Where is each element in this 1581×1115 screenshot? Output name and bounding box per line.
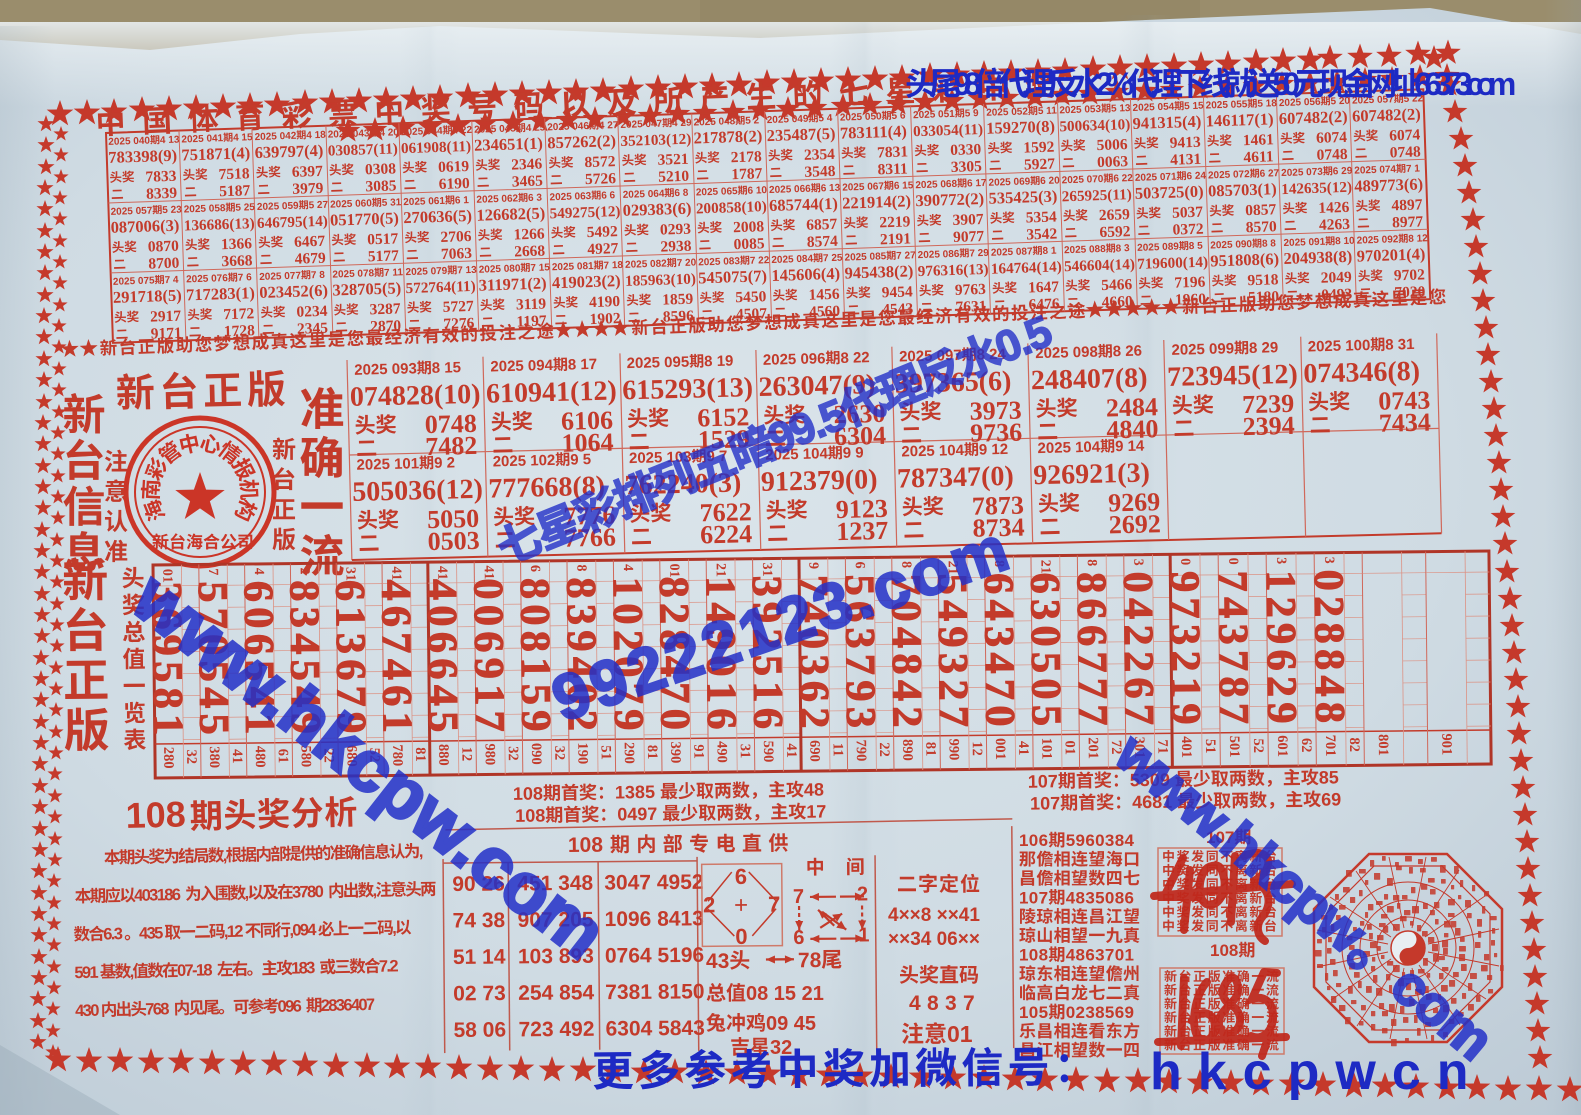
svg-text:419023(2): 419023(2) [552, 271, 621, 292]
svg-text:41: 41 [1015, 741, 1031, 756]
svg-text:8311: 8311 [877, 160, 908, 178]
svg-text:204938(8): 204938(8) [1283, 247, 1352, 268]
svg-text:9: 9 [1161, 571, 1207, 592]
svg-text:8570: 8570 [1245, 218, 1277, 236]
svg-text:951808(6): 951808(6) [1210, 249, 1279, 270]
svg-text:5 23: 5 23 [162, 205, 182, 217]
svg-text:2659: 2659 [1099, 206, 1131, 224]
svg-text:3668: 3668 [221, 252, 253, 270]
svg-text:2: 2 [1257, 596, 1303, 617]
svg-text:723945(12): 723945(12) [1167, 359, 1298, 393]
svg-text:32: 32 [505, 746, 521, 761]
svg-text:4: 4 [976, 652, 1022, 673]
svg-text:4611: 4611 [1243, 148, 1274, 166]
svg-text:6: 6 [527, 565, 542, 572]
svg-text:31: 31 [759, 562, 774, 576]
svg-text:5 20: 5 20 [1330, 96, 1350, 108]
svg-text:4: 4 [883, 680, 929, 701]
svg-text:7 11: 7 11 [384, 267, 404, 279]
svg-text:265925(11): 265925(11) [1061, 186, 1132, 205]
svg-text:5 2: 5 2 [745, 115, 760, 126]
svg-text:21: 21 [713, 563, 728, 577]
svg-text:234651(1): 234651(1) [474, 134, 543, 155]
svg-text:610941(12): 610941(12) [486, 375, 617, 409]
svg-text:5354: 5354 [1025, 209, 1057, 227]
svg-text:9 12: 9 12 [979, 441, 1009, 459]
svg-text:2025 085: 2025 085 [844, 251, 886, 263]
svg-text:2191: 2191 [880, 230, 912, 248]
svg-text:7: 7 [205, 568, 220, 575]
svg-text:023452(6): 023452(6) [259, 281, 328, 302]
svg-text:4: 4 [620, 564, 635, 571]
svg-text:+: + [734, 892, 748, 919]
svg-text:970201(4): 970201(4) [1356, 244, 1425, 265]
svg-text:108: 108 [125, 793, 186, 836]
svg-text:7196: 7196 [1174, 274, 1206, 292]
svg-text:2025 045: 2025 045 [474, 123, 516, 135]
svg-text:2025 068: 2025 068 [915, 179, 957, 191]
svg-text:4863701: 4863701 [1066, 946, 1135, 965]
svg-text:0372: 0372 [1172, 221, 1204, 239]
svg-text:2025 053: 2025 053 [1059, 104, 1101, 116]
svg-text:2025 074: 2025 074 [1354, 164, 1396, 176]
svg-text:12: 12 [969, 741, 985, 756]
svg-text:2: 2 [297, 567, 312, 574]
svg-text:0: 0 [1305, 569, 1351, 590]
svg-text:9702: 9702 [1394, 266, 1426, 284]
svg-text:3979: 3979 [292, 180, 324, 198]
svg-text:8977: 8977 [1392, 213, 1424, 231]
svg-text:2025 091: 2025 091 [1283, 237, 1325, 249]
svg-text:390772(2): 390772(2) [915, 189, 984, 210]
svg-text:2025 063: 2025 063 [549, 191, 591, 203]
svg-text:3119: 3119 [516, 296, 547, 314]
svg-text:31: 31 [342, 567, 357, 581]
svg-text:51 14: 51 14 [453, 946, 506, 969]
svg-text:0: 0 [976, 705, 1022, 726]
svg-text:7: 7 [466, 711, 512, 732]
svg-text:2: 2 [1115, 624, 1161, 645]
svg-text:217878(2): 217878(2) [693, 126, 762, 147]
svg-text:81: 81 [922, 742, 938, 757]
svg-text:2025 083: 2025 083 [698, 256, 740, 268]
svg-text:8: 8 [1210, 676, 1256, 697]
svg-text:2025 104: 2025 104 [901, 442, 965, 461]
svg-text:3542: 3542 [1026, 226, 1058, 244]
svg-text:4××8 ××41: 4××8 ××41 [888, 905, 980, 926]
svg-text:280: 280 [160, 747, 176, 769]
svg-text:146117(1): 146117(1) [1205, 109, 1273, 130]
svg-text:107: 107 [1019, 888, 1048, 907]
svg-text:2008: 2008 [733, 218, 765, 236]
svg-text:7: 7 [1068, 651, 1114, 672]
svg-text:9: 9 [1257, 623, 1303, 644]
svg-text:2668: 2668 [514, 243, 546, 261]
svg-text:980: 980 [481, 743, 497, 765]
svg-text:2025 050: 2025 050 [840, 111, 882, 123]
svg-text:489773(6): 489773(6) [1354, 174, 1423, 195]
svg-text:2025 072: 2025 072 [1208, 169, 1250, 181]
svg-text:2025 079: 2025 079 [405, 266, 447, 278]
svg-text:090: 090 [528, 743, 544, 765]
svg-text:200858(10): 200858(10) [696, 198, 767, 217]
svg-text:990: 990 [945, 739, 961, 761]
svg-text:6304 5843: 6304 5843 [605, 1017, 704, 1041]
svg-text:08 15 21: 08 15 21 [746, 983, 824, 1005]
svg-text:4: 4 [373, 659, 419, 680]
svg-text:029383(6): 029383(6) [622, 199, 691, 220]
svg-text:7 20: 7 20 [677, 257, 697, 269]
svg-text:3: 3 [1273, 557, 1288, 564]
svg-text:2025 067: 2025 067 [842, 181, 884, 193]
svg-text:2025 099: 2025 099 [1171, 340, 1234, 359]
svg-text:2025 086: 2025 086 [918, 249, 960, 261]
svg-text:1: 1 [696, 576, 742, 597]
svg-text:2394: 2394 [1242, 411, 1295, 441]
svg-text:9 9: 9 9 [843, 444, 864, 462]
svg-text:403186: 403186 [134, 886, 181, 905]
svg-text:0503: 0503 [427, 526, 480, 556]
svg-text:107: 107 [1028, 771, 1058, 791]
svg-text:6: 6 [1068, 625, 1114, 646]
svg-text:912379(0): 912379(0) [761, 464, 878, 498]
svg-text:7: 7 [1069, 678, 1115, 699]
svg-text:7 4: 7 4 [164, 275, 179, 286]
svg-text:4: 4 [883, 627, 929, 648]
svg-text:901: 901 [1438, 733, 1454, 755]
svg-text:6074: 6074 [1389, 126, 1421, 144]
svg-text:890: 890 [899, 739, 915, 761]
svg-text:639797(4): 639797(4) [254, 141, 323, 162]
svg-text:8: 8 [1068, 572, 1114, 593]
svg-text:9518: 9518 [1247, 271, 1279, 289]
svg-text:0063: 0063 [1097, 153, 1129, 171]
svg-text:1: 1 [744, 681, 790, 702]
svg-text:503725(0): 503725(0) [1135, 182, 1204, 203]
svg-text:001: 001 [992, 738, 1008, 760]
svg-text:69: 69 [1321, 789, 1341, 809]
svg-text:2025 049: 2025 049 [767, 114, 809, 126]
svg-text:4 22: 4 22 [452, 125, 472, 137]
svg-text:××34 06××: ××34 06×× [888, 929, 980, 950]
svg-text:033054(11): 033054(11) [913, 121, 984, 140]
svg-text:6: 6 [1021, 572, 1067, 593]
svg-text:7 6: 7 6 [238, 272, 253, 283]
svg-text:768: 768 [145, 1000, 169, 1018]
svg-text:501: 501 [1226, 736, 1242, 758]
svg-text:4927: 4927 [587, 240, 619, 258]
svg-text:6: 6 [372, 606, 418, 627]
svg-text:5037: 5037 [1172, 204, 1204, 222]
svg-text:087006(3): 087006(3) [110, 216, 179, 237]
svg-text:7 13: 7 13 [457, 265, 477, 277]
svg-text:4 20: 4 20 [379, 127, 399, 139]
svg-text:6 13: 6 13 [821, 183, 841, 195]
svg-text:6190: 6190 [438, 175, 470, 193]
svg-text:17: 17 [806, 802, 826, 822]
svg-text:6: 6 [744, 708, 790, 729]
svg-text:0: 0 [1022, 625, 1068, 646]
svg-text:108: 108 [515, 805, 545, 825]
svg-text:,12: ,12 [224, 923, 244, 941]
svg-text:1647: 1647 [1028, 278, 1060, 296]
svg-text:3: 3 [1130, 559, 1145, 566]
svg-text:2025 065: 2025 065 [696, 186, 738, 198]
svg-text:5 6: 5 6 [891, 110, 906, 121]
svg-text:790: 790 [853, 740, 869, 762]
svg-text:0: 0 [1225, 558, 1240, 565]
svg-text:751871(4): 751871(4) [181, 143, 250, 164]
svg-text:2025 082: 2025 082 [625, 258, 667, 270]
svg-text:880: 880 [435, 744, 451, 766]
svg-text:2025 102: 2025 102 [493, 452, 556, 471]
svg-text:5 4: 5 4 [818, 113, 833, 124]
svg-text:5 9: 5 9 [965, 108, 980, 119]
svg-text:1: 1 [1162, 677, 1208, 698]
svg-text:7 22: 7 22 [750, 255, 770, 267]
svg-text:164764(14): 164764(14) [991, 258, 1062, 277]
svg-text:82: 82 [1346, 737, 1362, 752]
svg-text:3: 3 [1161, 624, 1207, 645]
svg-text:2049: 2049 [1320, 269, 1352, 287]
svg-text:3085: 3085 [365, 177, 397, 195]
svg-text:801: 801 [1375, 734, 1391, 756]
svg-text:2025 089: 2025 089 [1137, 241, 1179, 253]
svg-text:783398(9): 783398(9) [108, 146, 177, 167]
svg-text:783111(4): 783111(4) [840, 121, 908, 142]
svg-text:7: 7 [930, 706, 976, 727]
svg-text:0857: 0857 [1245, 201, 1277, 219]
svg-text:2: 2 [791, 707, 837, 728]
svg-text:6857: 6857 [806, 216, 838, 234]
svg-text:2025 060: 2025 060 [330, 198, 372, 210]
svg-text:9: 9 [512, 710, 558, 731]
svg-text:2025 052: 2025 052 [986, 106, 1028, 118]
svg-text:12: 12 [458, 747, 474, 762]
svg-text:6: 6 [419, 658, 465, 679]
svg-text:2: 2 [1162, 650, 1208, 671]
svg-text:6397: 6397 [292, 163, 324, 181]
svg-text:4: 4 [251, 568, 266, 575]
svg-text:0: 0 [465, 605, 511, 626]
svg-text:9 14: 9 14 [1115, 438, 1145, 456]
svg-text:2: 2 [1115, 651, 1161, 672]
svg-text:2025 064: 2025 064 [623, 189, 665, 201]
svg-text:352103(12): 352103(12) [620, 131, 691, 150]
svg-text:0870: 0870 [148, 238, 180, 256]
svg-text:0: 0 [1022, 678, 1068, 699]
svg-text:787347(0): 787347(0) [897, 461, 1014, 495]
svg-text:1385: 1385 [615, 782, 655, 803]
svg-text:0238569: 0238569 [1066, 1003, 1135, 1022]
svg-text:8: 8 [144, 687, 190, 708]
svg-text:254 854: 254 854 [518, 981, 594, 1005]
svg-text:8 1: 8 1 [1042, 246, 1057, 257]
svg-text:5 11: 5 11 [1038, 105, 1058, 117]
svg-text:2025 094: 2025 094 [490, 357, 554, 376]
svg-text:3: 3 [281, 607, 327, 628]
svg-text:8700: 8700 [148, 255, 180, 273]
svg-text:6: 6 [735, 864, 747, 889]
svg-text:07-18: 07-18 [177, 961, 213, 980]
svg-text:5 13: 5 13 [1111, 103, 1131, 115]
svg-text:2354: 2354 [804, 146, 836, 164]
svg-text:52: 52 [1250, 738, 1266, 753]
svg-text:2836407: 2836407 [321, 996, 376, 1015]
svg-text:201: 201 [1085, 737, 1101, 759]
svg-text:5177: 5177 [368, 247, 400, 265]
svg-text:5466: 5466 [1101, 276, 1133, 294]
svg-text:1456: 1456 [808, 286, 840, 304]
svg-text:108: 108 [1210, 941, 1238, 960]
svg-text:91: 91 [690, 744, 706, 759]
svg-text:41: 41 [481, 565, 496, 579]
svg-text:9: 9 [1258, 702, 1304, 723]
svg-text:7518: 7518 [218, 165, 250, 183]
svg-text:2025 057: 2025 057 [110, 205, 152, 217]
svg-text:690: 690 [806, 740, 822, 762]
svg-text:685744(1): 685744(1) [769, 194, 838, 215]
svg-text:5 15: 5 15 [1184, 101, 1204, 113]
svg-text:62: 62 [1298, 738, 1314, 753]
svg-text:2025 070: 2025 070 [1062, 174, 1104, 186]
svg-text:2178: 2178 [730, 148, 762, 166]
svg-text:096: 096 [277, 997, 301, 1015]
svg-text:1461: 1461 [1243, 131, 1275, 149]
svg-text:183: 183 [291, 959, 315, 977]
svg-text:5927: 5927 [1024, 156, 1056, 174]
svg-text:02 73: 02 73 [453, 982, 506, 1005]
svg-text:0: 0 [735, 924, 747, 949]
svg-text:1859: 1859 [662, 291, 694, 309]
svg-text:101: 101 [1038, 738, 1054, 760]
svg-text:48: 48 [804, 780, 824, 800]
svg-text:6: 6 [1115, 677, 1161, 698]
svg-text:1: 1 [1257, 570, 1303, 591]
svg-text:976316(13): 976316(13) [917, 261, 988, 280]
svg-text:2: 2 [883, 706, 929, 727]
svg-text:7831: 7831 [877, 143, 909, 161]
svg-text:58 06: 58 06 [453, 1019, 506, 1042]
svg-text:6 24: 6 24 [1186, 171, 1206, 183]
svg-text:3047 4952: 3047 4952 [604, 871, 703, 895]
svg-text:7 27: 7 27 [896, 250, 916, 262]
svg-text:4 29: 4 29 [672, 118, 692, 130]
svg-text:8 10: 8 10 [1335, 236, 1355, 248]
svg-text:3287: 3287 [369, 300, 401, 318]
svg-text:8 3: 8 3 [1116, 243, 1131, 254]
svg-text:270636(5): 270636(5) [403, 206, 472, 227]
svg-text:0: 0 [1177, 558, 1192, 565]
svg-text:4: 4 [1114, 598, 1160, 619]
svg-text:545075(7): 545075(7) [698, 266, 767, 287]
svg-text:4 13: 4 13 [160, 135, 180, 147]
svg-text:2025 077: 2025 077 [259, 271, 301, 283]
svg-text:5: 5 [190, 713, 236, 734]
svg-text:6 29: 6 29 [1333, 166, 1353, 178]
svg-text:32: 32 [183, 750, 199, 765]
svg-text:2025 066: 2025 066 [769, 184, 811, 196]
svg-text:3: 3 [975, 626, 1021, 647]
svg-text:3: 3 [327, 633, 373, 654]
svg-text:8: 8 [1306, 702, 1352, 723]
svg-text:8 17: 8 17 [568, 356, 598, 374]
svg-text:7: 7 [768, 892, 780, 917]
svg-text:01: 01 [947, 1021, 973, 1047]
svg-text:0: 0 [604, 603, 650, 624]
svg-text:0: 0 [511, 604, 557, 625]
svg-text:2025 095: 2025 095 [626, 354, 689, 373]
svg-text:6 27: 6 27 [1260, 168, 1280, 180]
svg-text:6 1: 6 1 [455, 195, 470, 206]
svg-text:0308: 0308 [365, 160, 397, 178]
svg-text:1266: 1266 [513, 226, 545, 244]
svg-text:6467: 6467 [294, 233, 326, 251]
svg-text:4837: 4837 [909, 992, 981, 1015]
svg-text:221914(2): 221914(2) [842, 191, 911, 212]
svg-text:2025 041: 2025 041 [181, 133, 223, 145]
svg-text:9077: 9077 [953, 228, 985, 246]
svg-text:1: 1 [466, 684, 512, 705]
svg-text:8572: 8572 [584, 153, 616, 171]
svg-text:6: 6 [698, 708, 744, 729]
svg-text:380: 380 [206, 746, 222, 768]
svg-text:500634(10): 500634(10) [1059, 116, 1130, 135]
svg-text:7: 7 [1069, 704, 1115, 725]
svg-text:3521: 3521 [657, 151, 689, 169]
svg-text:051770(5): 051770(5) [330, 208, 399, 229]
svg-text:8: 8 [280, 580, 326, 601]
svg-text:31: 31 [737, 744, 753, 759]
svg-text:7 29: 7 29 [969, 248, 989, 260]
svg-text:3: 3 [837, 707, 883, 728]
svg-text:5 31: 5 31 [382, 197, 402, 209]
svg-text:5187: 5187 [219, 182, 251, 200]
svg-text:4: 4 [418, 579, 464, 600]
svg-text:7 18: 7 18 [603, 260, 623, 272]
svg-text:2025 069: 2025 069 [988, 176, 1030, 188]
svg-text:8: 8 [1306, 649, 1352, 670]
svg-text:,094: ,094 [289, 921, 317, 940]
svg-text:480: 480 [252, 746, 268, 768]
svg-text:2692: 2692 [1108, 509, 1161, 539]
svg-text:0330: 0330 [950, 141, 982, 159]
svg-text:4835086: 4835086 [1066, 888, 1135, 907]
svg-text:291718(5): 291718(5) [113, 286, 182, 307]
svg-text:1960: 1960 [1175, 291, 1207, 309]
svg-text:4: 4 [419, 685, 465, 706]
svg-text:7: 7 [373, 632, 419, 653]
svg-text:7: 7 [1210, 703, 1256, 724]
svg-text:1366: 1366 [221, 235, 253, 253]
svg-text:2025 096: 2025 096 [763, 350, 826, 369]
svg-text:6 6: 6 6 [601, 190, 616, 201]
svg-text:0619: 0619 [438, 158, 470, 176]
svg-text:2025 101: 2025 101 [356, 455, 419, 474]
svg-text:4131: 4131 [1170, 151, 1202, 169]
svg-text:6 20: 6 20 [1040, 175, 1060, 187]
svg-text:6592: 6592 [1099, 223, 1131, 241]
svg-text:2025 071: 2025 071 [1135, 172, 1177, 184]
svg-text:1237: 1237 [836, 516, 889, 546]
svg-text:108: 108 [568, 834, 604, 857]
svg-text:572764(11): 572764(11) [405, 278, 476, 297]
svg-text:126682(5): 126682(5) [476, 203, 545, 224]
svg-text:0: 0 [651, 709, 697, 730]
svg-text:719600(14): 719600(14) [1137, 254, 1208, 273]
svg-text:5726: 5726 [585, 170, 617, 188]
svg-text:7 25: 7 25 [823, 253, 843, 265]
